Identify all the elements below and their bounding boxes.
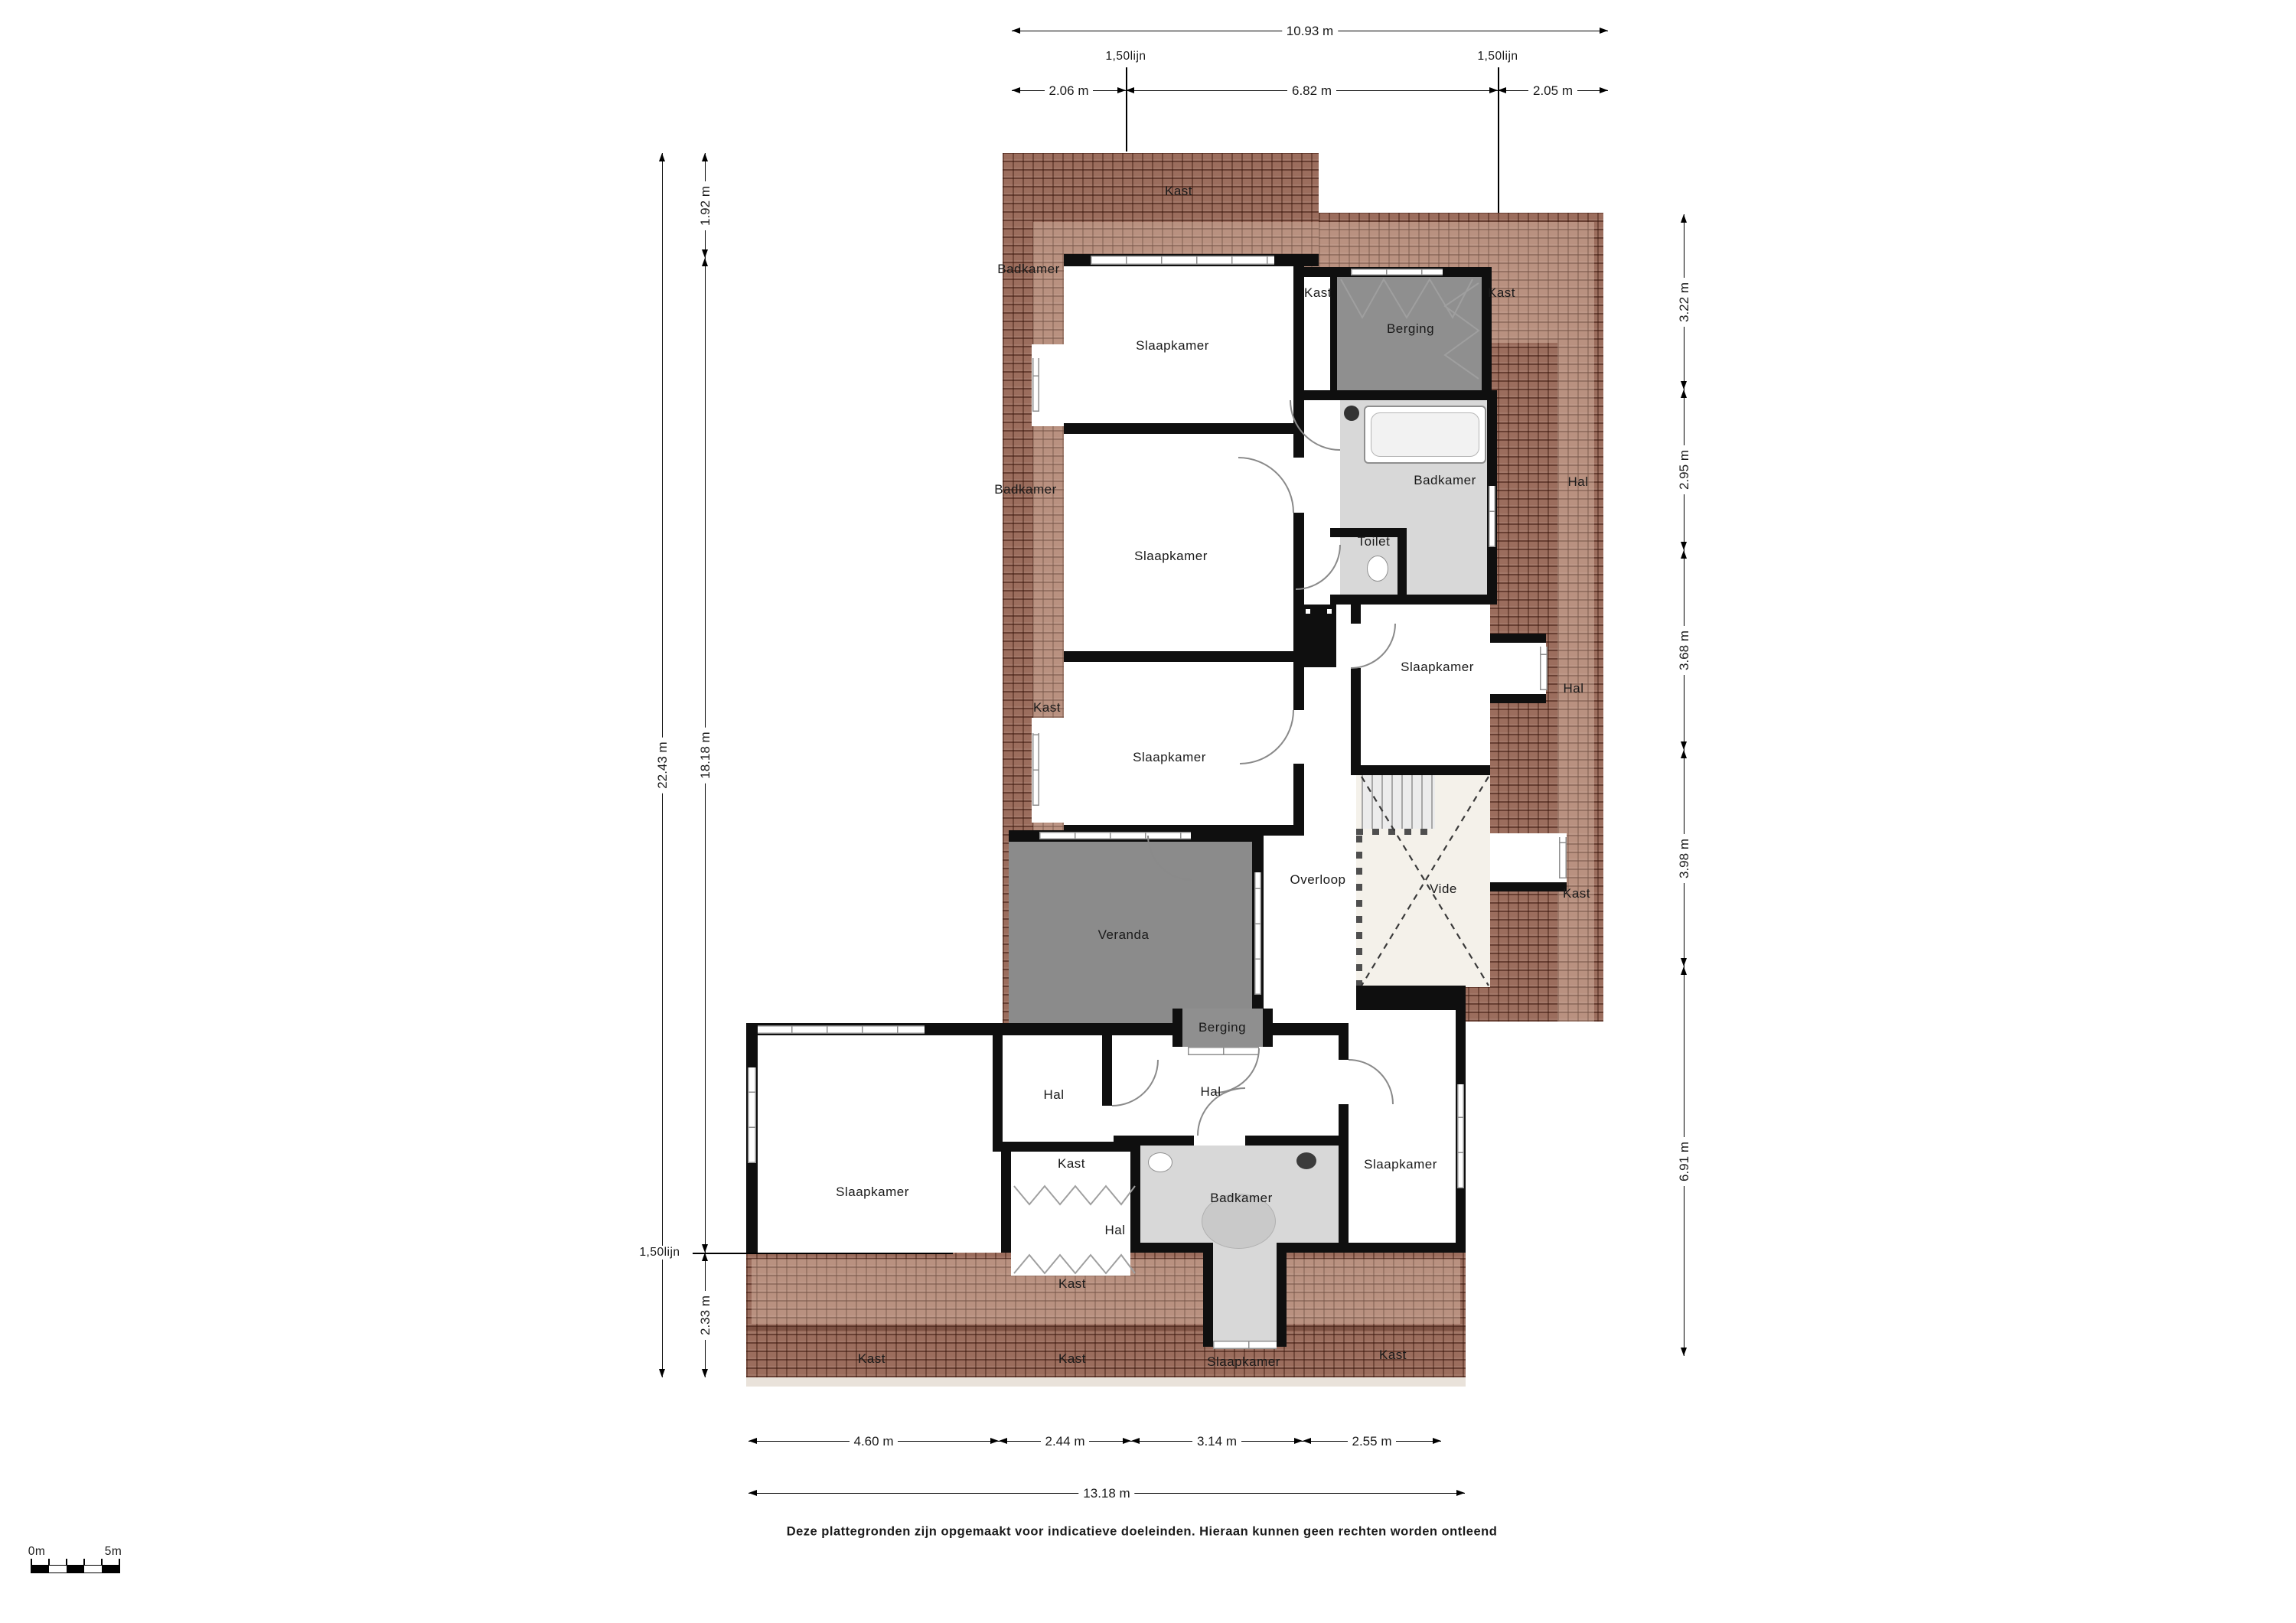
toilet-bowl [1296, 1152, 1316, 1169]
window [1489, 486, 1495, 547]
dim-top-seg-2: 6.82 m [1126, 90, 1498, 91]
wall [1277, 1253, 1287, 1347]
door-opening [1351, 624, 1361, 668]
room-label-slaapkamer-2: Slaapkamer [1134, 549, 1208, 564]
room-label-berging-1: Berging [1387, 321, 1434, 337]
scalebar-start-label: 0m [28, 1545, 46, 1559]
room-label-hal-1: Hal [1043, 1087, 1064, 1103]
wall [993, 1035, 1003, 1152]
window [1091, 256, 1274, 265]
dim-label: 4.60 m [850, 1434, 899, 1449]
toilet-bowl [1367, 556, 1388, 582]
dim-lijn-label-2: 1,50lijn [1477, 50, 1518, 64]
room-label-hal-right-2: Hal [1563, 681, 1583, 696]
shower-dormer [1213, 1253, 1277, 1343]
lijn-line [693, 1253, 953, 1254]
room-label-vide: Vide [1430, 882, 1457, 897]
room-label-kast-right-1: Kast [1488, 285, 1515, 301]
dim-label: 2.33 m [698, 1291, 713, 1340]
scale-segment [31, 1566, 49, 1572]
room-slaapkamer-3 [1064, 662, 1293, 825]
room-label-overloop: Overloop [1290, 872, 1346, 888]
room-label-berging-2: Berging [1199, 1020, 1246, 1035]
window [1457, 1084, 1464, 1188]
scalebar-tick [119, 1559, 120, 1565]
dim-label: 2.95 m [1677, 445, 1692, 494]
wall [1490, 882, 1567, 891]
room-label-kast-right-2: Kast [1563, 886, 1590, 901]
room-slaapkamer-6 [1349, 1010, 1456, 1253]
room-label-kast-2: Kast [1058, 1156, 1085, 1172]
room-label-kast-mid: Kast [1304, 285, 1332, 301]
wall [1397, 537, 1407, 595]
wall [1277, 1243, 1349, 1253]
dim-right-seg-4: 3.98 m [1684, 750, 1684, 966]
wall [1102, 1035, 1112, 1106]
dim-left-seg-1: 1.92 m [705, 153, 706, 258]
roof-ridge [746, 1326, 1466, 1331]
scalebar-tick [66, 1559, 67, 1565]
scale-segment [49, 1566, 67, 1572]
dim-label: 3.14 m [1192, 1434, 1241, 1449]
vide-railing [1356, 835, 1362, 987]
window [1039, 832, 1191, 839]
dim-label: 2.05 m [1528, 83, 1577, 99]
wall [1351, 765, 1490, 775]
dim-label: 10.93 m [1282, 24, 1338, 39]
dim-left-seg-3: 2.33 m [705, 1253, 706, 1377]
dim-right-seg-1: 3.22 m [1684, 214, 1684, 389]
window [1188, 1047, 1259, 1055]
dim-label: 2.44 m [1041, 1434, 1090, 1449]
window [1351, 269, 1443, 275]
window [1559, 837, 1567, 878]
scale-bar [31, 1565, 120, 1573]
scale-segment [84, 1566, 102, 1572]
room-label-slaapkamer-4: Slaapkamer [1401, 660, 1474, 675]
dim-left-seg-2: 18.18 m [705, 258, 706, 1253]
window [1032, 358, 1039, 412]
dim-label: 13.18 m [1078, 1486, 1134, 1501]
wall [1330, 595, 1497, 605]
dim-label: 22.43 m [655, 737, 670, 793]
room-label-badkamer-roof-2: Badkamer [994, 482, 1056, 497]
dim-bottom-seg-3: 3.14 m [1131, 1441, 1303, 1442]
room-label-kast-left: Kast [1033, 700, 1061, 715]
floorplan-canvas: Kast Badkamer Slaapkamer Kast Berging Ka… [0, 0, 2296, 1623]
wall [1339, 1023, 1349, 1253]
scale-segment [102, 1566, 119, 1572]
wall [1140, 1243, 1213, 1253]
room-label-slaapkamer-6: Slaapkamer [1364, 1157, 1437, 1172]
dim-top-seg-3: 2.05 m [1498, 90, 1608, 91]
dim-bottom-seg-1: 4.60 m [748, 1441, 999, 1442]
room-label-badkamer-roof-1: Badkamer [997, 262, 1059, 277]
shower-head [1344, 406, 1359, 421]
window [1032, 733, 1039, 806]
room-label-slaapkamer-5: Slaapkamer [836, 1185, 909, 1200]
wall [1203, 1253, 1213, 1347]
stair-railing [1356, 829, 1435, 835]
room-label-slaapkamer-1: Slaapkamer [1136, 338, 1209, 354]
dim-label: 2.55 m [1348, 1434, 1397, 1449]
wall [1349, 1243, 1456, 1253]
room-slaapkamer-4 [1361, 605, 1490, 765]
lijn-line [1126, 67, 1127, 152]
dim-label: 6.91 m [1677, 1137, 1692, 1186]
scalebar-tick [101, 1559, 103, 1565]
wall [1064, 651, 1304, 662]
roof-label-kast-mid: Kast [1058, 1351, 1086, 1367]
window [1213, 1341, 1277, 1349]
room-label-slaapkamer-3: Slaapkamer [1133, 750, 1206, 765]
roof-label-kast-right: Kast [1379, 1348, 1407, 1363]
dim-label: 3.98 m [1677, 834, 1692, 883]
sink [1148, 1152, 1172, 1172]
door-opening [1339, 1060, 1349, 1104]
window [748, 1067, 756, 1163]
scalebar-tick [83, 1559, 85, 1565]
door-opening [1194, 1136, 1245, 1146]
dim-left-total: 22.43 m [662, 153, 663, 1377]
door-opening [1293, 458, 1304, 513]
window [1540, 647, 1548, 690]
window [756, 1025, 925, 1034]
room-label-veranda: Veranda [1098, 927, 1150, 943]
dim-lijn-label-3: 1,50lijn [636, 1246, 683, 1260]
dim-lijn-label-1: 1,50lijn [1105, 50, 1146, 64]
roof-label-kast-left: Kast [858, 1351, 885, 1367]
wall [1490, 634, 1546, 643]
roof-eave [746, 1377, 1466, 1387]
staircase [1362, 775, 1435, 829]
chimney-flue [1327, 609, 1332, 614]
wall [1263, 1009, 1273, 1047]
scalebar-end-label: 5m [105, 1545, 122, 1559]
bathtub [1364, 406, 1486, 464]
dim-top-total: 10.93 m [1012, 31, 1608, 31]
room-label-hal-2: Hal [1200, 1084, 1221, 1100]
room-label-toilet: Toilet [1358, 534, 1391, 549]
roof-label-kast-center: Kast [1058, 1276, 1086, 1292]
dim-label: 18.18 m [698, 727, 713, 783]
wall [1304, 390, 1497, 400]
wall [1263, 1023, 1349, 1035]
wall [1064, 423, 1304, 434]
scalebar-tick [48, 1559, 50, 1565]
wall [1172, 1009, 1182, 1047]
chimney-flue [1306, 609, 1310, 614]
dim-right-seg-2: 2.95 m [1684, 389, 1684, 550]
dim-bottom-seg-4: 2.55 m [1303, 1441, 1441, 1442]
dim-bottom-seg-2: 2.44 m [999, 1441, 1131, 1442]
roof-label-slaapkamer: Slaapkamer [1207, 1354, 1280, 1370]
wall [1490, 694, 1546, 703]
dim-label: 1.92 m [698, 181, 713, 230]
room-label-badkamer-2: Badkamer [1210, 1191, 1272, 1206]
dim-bottom-total: 13.18 m [748, 1493, 1465, 1494]
closet-recess [1490, 643, 1546, 694]
dim-top-seg-1: 2.06 m [1012, 90, 1126, 91]
disclaimer-text: Deze plattegronden zijn opgemaakt voor i… [787, 1525, 1498, 1540]
room-label-hal-3: Hal [1104, 1223, 1125, 1238]
room-overloop [1264, 836, 1356, 1029]
chimney [1301, 605, 1336, 667]
door-opening [1293, 710, 1304, 764]
dim-right-seg-3: 3.68 m [1684, 550, 1684, 750]
dim-right-seg-5: 6.91 m [1684, 966, 1684, 1356]
room-label-hal-right-1: Hal [1567, 474, 1588, 490]
closet-recess [1490, 833, 1567, 882]
window [1254, 872, 1261, 995]
dim-label: 6.82 m [1287, 83, 1336, 99]
dim-label: 3.68 m [1677, 626, 1692, 675]
dim-label: 3.22 m [1677, 278, 1692, 327]
scalebar-tick [31, 1559, 32, 1565]
room-label-kast-top: Kast [1165, 184, 1192, 199]
closet-floor [1011, 1253, 1130, 1276]
dim-label: 2.06 m [1045, 83, 1094, 99]
room-label-badkamer-1: Badkamer [1414, 473, 1476, 488]
room-slaapkamer-2 [1064, 434, 1293, 651]
scale-segment [67, 1566, 84, 1572]
